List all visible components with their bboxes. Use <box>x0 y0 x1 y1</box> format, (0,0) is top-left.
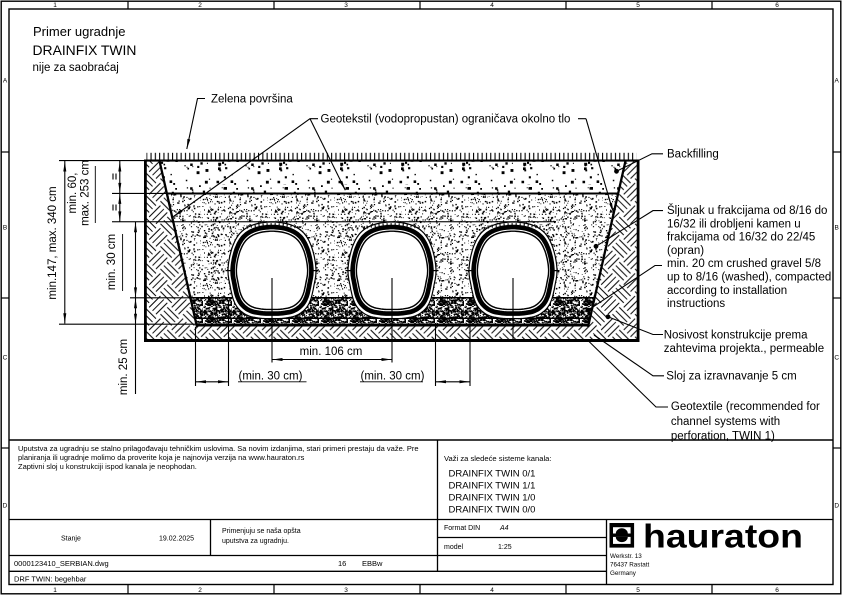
svg-text:according to installation: according to installation <box>667 285 787 297</box>
svg-text:Nosivost konstrukcije prema: Nosivost konstrukcije prema <box>664 330 808 342</box>
svg-text:channel systems with: channel systems with <box>671 416 780 428</box>
svg-text:76437 Rastatt: 76437 Rastatt <box>610 562 649 569</box>
svg-text:Backfilling: Backfilling <box>667 149 719 161</box>
svg-text:min. 25 cm: min. 25 cm <box>118 339 130 395</box>
svg-text:A4: A4 <box>499 525 509 532</box>
svg-text:(min. 30 cm): (min. 30 cm) <box>361 371 425 383</box>
svg-text:C: C <box>834 354 839 361</box>
svg-text:(opran): (opran) <box>667 245 704 257</box>
svg-text:6: 6 <box>775 587 779 594</box>
svg-text:4: 4 <box>490 2 494 9</box>
svg-text:2: 2 <box>198 2 202 9</box>
svg-text:min. 106 cm: min. 106 cm <box>300 346 363 358</box>
svg-text:up to 8/16 (washed), compacted: up to 8/16 (washed), compacted <box>667 272 831 284</box>
svg-text:B: B <box>835 224 839 231</box>
svg-text:max. 253 cm: max. 253 cm <box>80 160 92 226</box>
svg-text:min. 60,: min. 60, <box>67 173 79 214</box>
svg-text:19.02.2025: 19.02.2025 <box>159 536 194 543</box>
svg-text:Primer ugradnje: Primer ugradnje <box>33 24 126 39</box>
svg-text:Primenjuju se naša opšta: Primenjuju se naša opšta <box>222 528 301 535</box>
svg-text:6: 6 <box>775 2 779 9</box>
svg-text:A: A <box>3 77 8 84</box>
svg-text:DRAINFIX TWIN 1/0: DRAINFIX TWIN 1/0 <box>449 493 536 504</box>
svg-text:min.147, max. 340 cm: min.147, max. 340 cm <box>47 186 59 299</box>
svg-text:1:25: 1:25 <box>498 544 512 551</box>
svg-text:zahtevima projekta., permeable: zahtevima projekta., permeable <box>664 343 824 355</box>
svg-text:min. 20 cm crushed gravel 5/8: min. 20 cm crushed gravel 5/8 <box>667 258 821 270</box>
svg-text:DRAINFIX TWIN: DRAINFIX TWIN <box>33 42 137 58</box>
svg-text:(min. 30 cm): (min. 30 cm) <box>239 371 303 383</box>
svg-text:D: D <box>834 502 839 509</box>
svg-text:Zelena površina: Zelena površina <box>211 94 293 106</box>
svg-text:model: model <box>444 544 464 551</box>
svg-text:Format DIN: Format DIN <box>444 525 480 532</box>
svg-text:D: D <box>3 502 8 509</box>
svg-text:3: 3 <box>344 587 348 594</box>
svg-text:Germany: Germany <box>610 570 637 577</box>
svg-text:5: 5 <box>636 2 640 9</box>
svg-text:Sloj za izravnavanje 5 cm: Sloj za izravnavanje 5 cm <box>666 371 796 383</box>
svg-text:Šljunak u frakcijama od 8/16 d: Šljunak u frakcijama od 8/16 do <box>667 204 827 217</box>
svg-text:B: B <box>3 224 7 231</box>
svg-text:Stanje: Stanje <box>61 536 81 543</box>
svg-text:5: 5 <box>636 587 640 594</box>
svg-text:Werkstr. 13: Werkstr. 13 <box>610 553 642 560</box>
svg-text:hauraton: hauraton <box>643 519 803 556</box>
svg-text:DRAINFIX TWIN 0/1: DRAINFIX TWIN 0/1 <box>449 469 536 480</box>
svg-text:DRF TWIN: begehbar: DRF TWIN: begehbar <box>14 575 87 584</box>
svg-text:3: 3 <box>344 2 348 9</box>
svg-text:Geotekstil (vodopropustan) ogr: Geotekstil (vodopropustan) ograničava ok… <box>321 114 571 126</box>
svg-text:planiranja ili ugradnje molimo: planiranja ili ugradnje molimo da prover… <box>18 453 305 462</box>
svg-text:1: 1 <box>53 587 57 594</box>
svg-text:nije za saobraćaj: nije za saobraćaj <box>33 62 119 74</box>
svg-text:C: C <box>3 354 8 361</box>
svg-text:Geotextile (recommended for: Geotextile (recommended for <box>671 401 820 413</box>
svg-text:A: A <box>835 77 840 84</box>
svg-text:EBBw: EBBw <box>362 559 383 568</box>
svg-text:min. 30 cm: min. 30 cm <box>106 234 118 290</box>
svg-text:DRAINFIX TWIN 1/1: DRAINFIX TWIN 1/1 <box>449 481 536 492</box>
svg-text:4: 4 <box>490 587 494 594</box>
svg-text:0000123410_SERBIAN.dwg: 0000123410_SERBIAN.dwg <box>14 559 109 568</box>
svg-text:Uputstva za ugradnju se stalno: Uputstva za ugradnju se stalno prilagođa… <box>18 444 419 453</box>
svg-text:DRAINFIX TWIN 0/0: DRAINFIX TWIN 0/0 <box>449 505 536 516</box>
svg-text:frakcijama od 16/32 do 22/45: frakcijama od 16/32 do 22/45 <box>667 232 815 244</box>
svg-text:Zaptivni sloj u konstrukciji i: Zaptivni sloj u konstrukciji ispod kanal… <box>18 462 197 471</box>
svg-text:16/32 ili drobljeni kamen u: 16/32 ili drobljeni kamen u <box>667 218 801 230</box>
svg-text:16: 16 <box>338 559 346 568</box>
svg-text:instructions: instructions <box>667 298 725 310</box>
svg-text:2: 2 <box>198 587 202 594</box>
svg-text:1: 1 <box>53 2 57 9</box>
svg-text:Važi za sledeće sisteme kanala: Važi za sledeće sisteme kanala: <box>444 454 552 463</box>
svg-text:uputstva za ugradnju.: uputstva za ugradnju. <box>222 538 289 545</box>
